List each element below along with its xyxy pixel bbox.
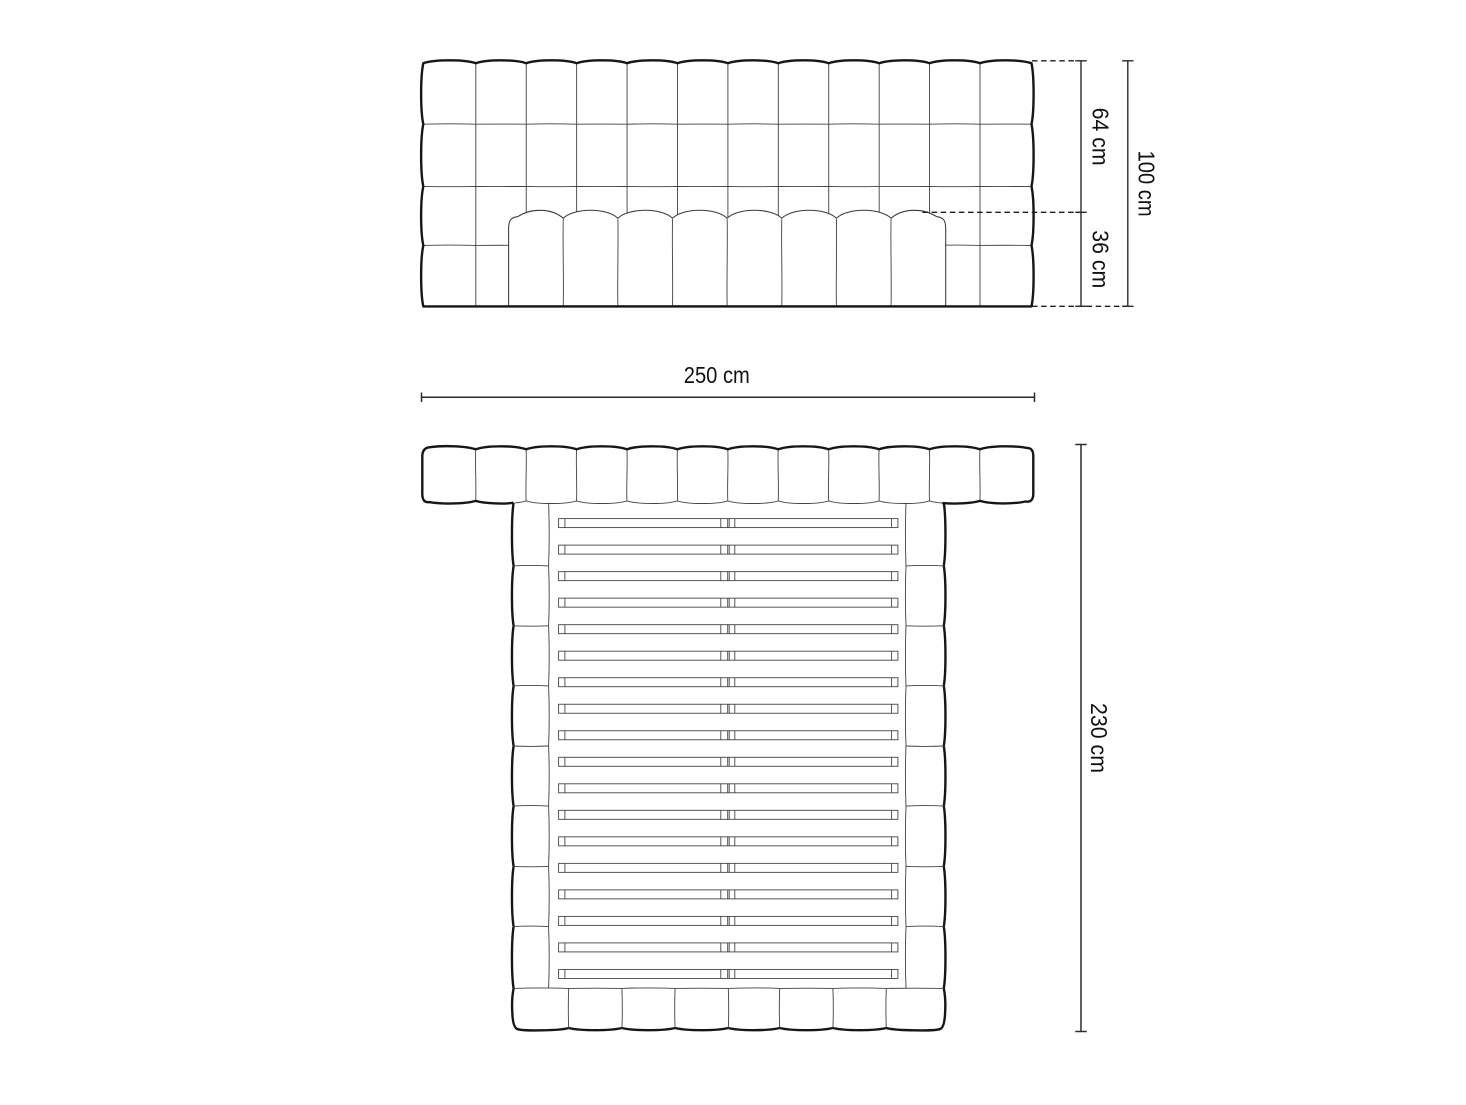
svg-text:64 cm: 64 cm [1087,108,1113,166]
svg-text:230 cm: 230 cm [1086,703,1112,773]
svg-text:250 cm: 250 cm [684,362,750,388]
svg-text:36 cm: 36 cm [1087,230,1113,288]
svg-text:100 cm: 100 cm [1134,151,1160,217]
